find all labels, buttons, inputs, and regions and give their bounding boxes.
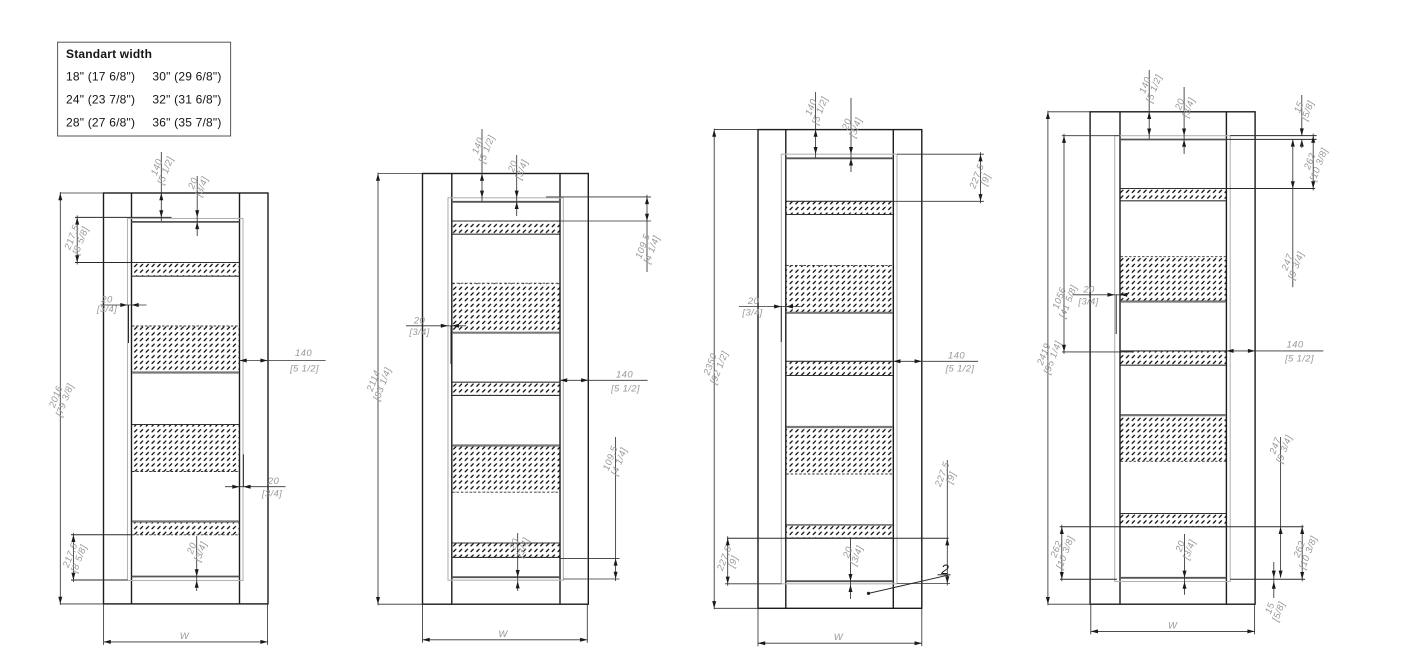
svg-text:30" (29 6/8"): 30" (29 6/8") xyxy=(152,70,221,84)
svg-text:[3/4]: [3/4] xyxy=(1077,296,1098,307)
svg-text:28" (27 6/8"): 28" (27 6/8") xyxy=(66,116,135,130)
svg-text:[3/4]: [3/4] xyxy=(261,489,282,500)
svg-text:W: W xyxy=(180,631,190,642)
svg-text:[3/4]: [3/4] xyxy=(96,304,117,315)
svg-text:[5 1/2]: [5 1/2] xyxy=(289,363,319,374)
svg-text:24" (23 7/8"): 24" (23 7/8") xyxy=(66,93,135,107)
svg-text:W: W xyxy=(1168,620,1178,631)
svg-text:[3/4]: [3/4] xyxy=(408,327,429,338)
svg-text:[3/4]: [3/4] xyxy=(741,308,762,319)
svg-text:Standart width: Standart width xyxy=(66,47,152,61)
svg-text:20: 20 xyxy=(413,315,426,326)
svg-text:[5 1/2]: [5 1/2] xyxy=(945,363,975,374)
svg-text:W: W xyxy=(498,629,508,640)
svg-text:20: 20 xyxy=(267,476,280,487)
svg-text:140: 140 xyxy=(1287,339,1304,350)
svg-text:20: 20 xyxy=(747,296,760,307)
svg-text:[5 1/2]: [5 1/2] xyxy=(610,383,640,394)
svg-text:140: 140 xyxy=(948,350,965,361)
svg-text:32" (31 6/8"): 32" (31 6/8") xyxy=(152,93,221,107)
svg-text:36" (35 7/8"): 36" (35 7/8") xyxy=(152,116,221,130)
svg-text:18" (17 6/8"): 18" (17 6/8") xyxy=(66,70,135,84)
svg-text:W: W xyxy=(834,632,844,643)
svg-text:140: 140 xyxy=(295,348,312,359)
svg-text:20: 20 xyxy=(1082,284,1095,295)
svg-text:[5 1/2]: [5 1/2] xyxy=(1284,353,1314,364)
svg-text:140: 140 xyxy=(616,369,633,380)
